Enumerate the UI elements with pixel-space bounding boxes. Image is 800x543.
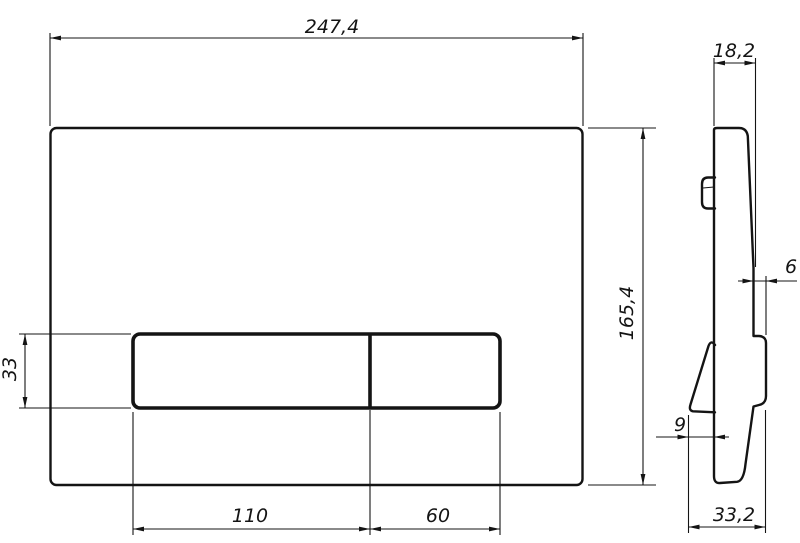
dim-label-button-protrusion: 6 [785,256,797,278]
arrowhead-right [359,527,370,532]
arrowhead-right [743,279,754,284]
dim-label-overall-height: 165,4 [616,286,638,340]
dim-overall-height: 165,4 [588,128,656,485]
arrowhead-down [23,397,28,408]
front-view: 247,4 165,4 33 [0,16,656,535]
arrowhead-up [23,334,28,345]
arrowhead-left [689,525,700,530]
dim-label-large-button-width: 110 [232,505,268,527]
arrowhead-left [714,435,725,440]
technical-drawing-canvas: 247,4 165,4 33 [0,0,800,543]
arrowhead-down [641,474,646,485]
technical-drawing-page: 247,4 165,4 33 [0,0,800,543]
dim-button-widths: 110 60 [133,410,500,535]
arrowhead-right [572,36,583,41]
dim-bottom-depth: 33,2 [689,410,766,533]
dim-label-small-button-width: 60 [426,505,450,527]
button-panel-outline [133,334,500,408]
mounting-clip-seam [703,187,714,188]
arrowhead-up [641,128,646,139]
dim-button-height: 33 [0,334,131,408]
arrowhead-left [766,279,777,284]
mounting-hook-bottom [690,342,715,412]
dim-label-bottom-depth: 33,2 [713,504,755,526]
dim-button-protrusion: 6 [738,256,797,335]
flush-plate-outline [51,128,583,485]
dim-label-top-depth: 18,2 [713,40,755,62]
dim-label-overall-width: 247,4 [305,16,359,38]
arrowhead-left [50,36,61,41]
dim-overall-width: 247,4 [50,16,583,126]
side-view: 18,2 6 9 [656,40,797,533]
arrowhead-left [133,527,144,532]
side-profile-outline [714,128,766,483]
arrowhead-right [755,525,766,530]
dim-label-button-height: 33 [0,357,21,381]
arrowhead-right [489,527,500,532]
dim-hook-offset: 9 [656,414,729,439]
arrowhead-left [370,527,381,532]
dim-label-hook-offset: 9 [674,414,686,436]
